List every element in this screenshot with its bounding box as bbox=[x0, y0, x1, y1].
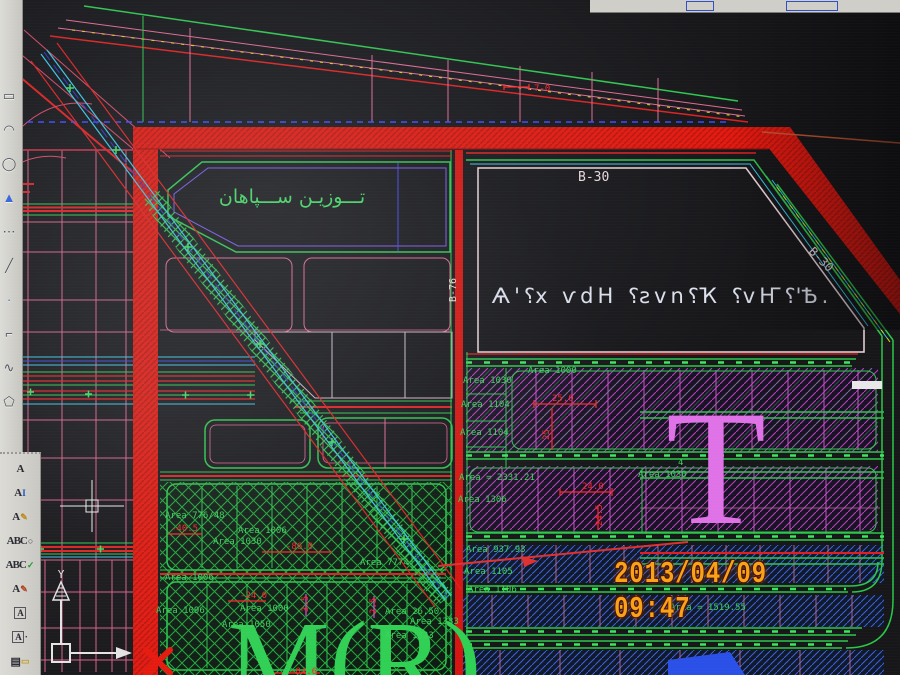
toolbar-button-fragment bbox=[686, 1, 714, 11]
text-toolbar: AAIA✎ABC○ABC✓A✎AA·▤▭ bbox=[0, 452, 41, 675]
point-tool-icon[interactable]: ∙ bbox=[0, 292, 21, 307]
rectangle-tool-icon[interactable]: ▭ bbox=[0, 88, 21, 104]
polyline-tool-icon[interactable]: ⌐ bbox=[0, 326, 21, 341]
circle-tool-icon[interactable]: ◯ bbox=[0, 156, 21, 172]
hatch-tool-icon[interactable]: ▲ bbox=[0, 190, 21, 205]
polygon-tool-icon[interactable]: ⬠ bbox=[0, 394, 21, 410]
line-tool-icon[interactable]: ╱ bbox=[0, 258, 21, 274]
camera-timestamp: 2013/04/09 09:47 bbox=[614, 557, 837, 627]
ellipsis-icon[interactable]: ⋯ bbox=[0, 224, 21, 240]
text-style-icon[interactable]: A✎ bbox=[4, 578, 36, 600]
single-line-text-icon[interactable]: AI bbox=[4, 482, 36, 504]
find-replace-icon[interactable]: ABC○ bbox=[4, 530, 36, 552]
cad-screen-photo: T M(R) تـــوزيـن ســـپاهان Ѧ'؟x ѵdH ؟ƨvn… bbox=[0, 0, 900, 675]
arc-tool-icon[interactable]: ◠ bbox=[0, 122, 21, 138]
mtext-icon[interactable]: A bbox=[4, 458, 36, 480]
toolbar-button-fragment bbox=[786, 1, 838, 11]
convert-units-icon[interactable]: ▤▭ bbox=[4, 650, 36, 672]
spline-tool-icon[interactable]: ∿ bbox=[0, 360, 21, 376]
scale-text-icon[interactable]: A bbox=[4, 602, 36, 624]
window-chrome-fragment bbox=[590, 0, 900, 13]
justify-text-icon[interactable]: A· bbox=[4, 626, 36, 648]
spell-check-icon[interactable]: ABC✓ bbox=[4, 554, 36, 576]
edit-text-icon[interactable]: A✎ bbox=[4, 506, 36, 528]
corner-shadow bbox=[730, 0, 900, 330]
